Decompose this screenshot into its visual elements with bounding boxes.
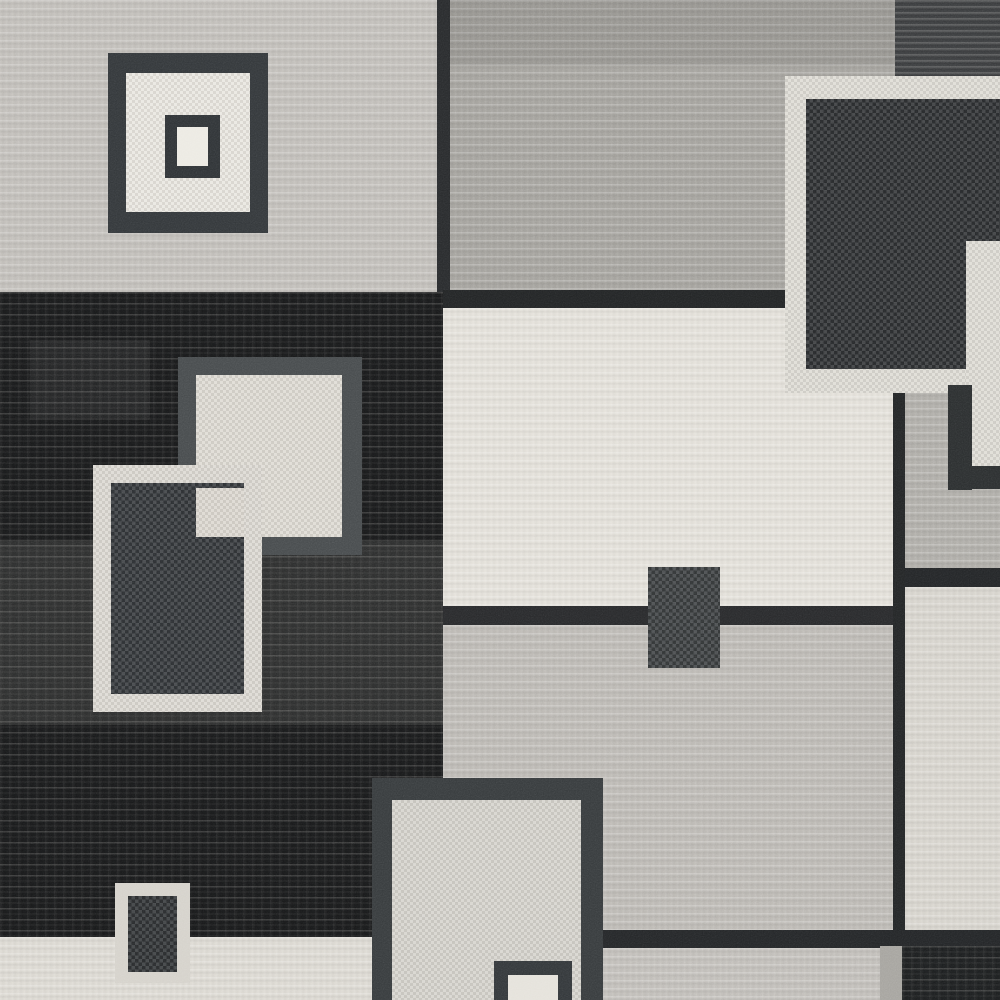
rug-product-photo <box>0 0 1000 1000</box>
seam-horizontal-center-top <box>443 290 788 308</box>
block-top-right-charcoal <box>895 0 1000 80</box>
dark-elbow-horizontal <box>948 466 1000 489</box>
shade-top-middle <box>443 0 895 65</box>
seam-horizontal-right <box>895 568 1000 587</box>
bottom-rect-inner-white-fill <box>508 975 558 1000</box>
wash-black-field-light-2 <box>30 340 150 420</box>
big-square-charcoal-extension <box>968 99 1000 241</box>
sliver-bottom-right-gray <box>880 946 902 1000</box>
seam-vertical-top <box>437 0 450 300</box>
small-rect-charcoal-fill <box>128 896 177 972</box>
seam-horizontal-bottom-right <box>880 930 1000 947</box>
big-square-charcoal-fill <box>806 99 968 369</box>
center-small-charcoal-rect <box>648 567 720 668</box>
seam-horizontal-center-bottom <box>598 930 898 948</box>
band-bottom-gray <box>600 948 895 1000</box>
nested-square-inner-fill <box>177 127 208 166</box>
field-right-cream <box>903 587 1000 932</box>
seam-vertical-right <box>893 392 905 932</box>
block-bottom-right-black <box>902 946 1000 1000</box>
overlap-cream-patch <box>196 488 244 537</box>
